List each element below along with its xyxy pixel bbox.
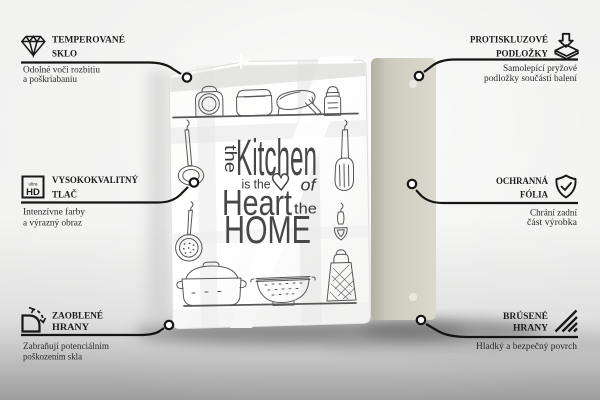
svg-text:Zabraňují potenciálním: Zabraňují potenciálním [23,342,110,352]
svg-text:poškozením skla: poškozením skla [23,353,82,363]
svg-text:PODLOŽKY: PODLOŽKY [496,48,548,60]
svg-text:ultra: ultra [29,182,38,187]
svg-text:TEMPEROVANÉ: TEMPEROVANÉ [52,34,125,46]
svg-text:HD: HD [26,187,40,198]
svg-text:TLAČ: TLAČ [52,188,77,201]
svg-text:HRANY: HRANY [52,322,89,333]
svg-text:ZAOBLENÉ: ZAOBLENÉ [52,309,103,321]
svg-text:část výrobka: část výrobka [527,218,577,228]
svg-text:of: of [301,176,318,195]
svg-text:OCHRANNÁ: OCHRANNÁ [496,175,548,187]
svg-text:PROTISKLUZOVÉ: PROTISKLUZOVÉ [470,34,548,46]
svg-text:FÓLIA: FÓLIA [520,189,548,201]
svg-text:Odolné voči rozbitiu: Odolné voči rozbitiu [23,65,100,75]
svg-text:HRANY: HRANY [513,323,548,334]
svg-text:a výrazný obraz: a výrazný obraz [23,218,82,228]
svg-text:BRÚSENÉ: BRÚSENÉ [503,310,548,322]
svg-text:SKLO: SKLO [52,49,77,60]
svg-text:VYSOKOKVALITNÝ: VYSOKOKVALITNÝ [52,174,138,186]
svg-text:Hladký a bezpečný povrch: Hladký a bezpečný povrch [476,342,577,352]
svg-text:Samolepící pryžové: Samolepící pryžové [503,64,577,74]
svg-text:podložky součástí balení: podložky součástí balení [484,74,577,84]
svg-text:HOME: HOME [224,209,311,253]
svg-text:Intenzívne farby: Intenzívne farby [23,207,85,218]
svg-text:a poškriabaniu: a poškriabaniu [23,75,77,85]
